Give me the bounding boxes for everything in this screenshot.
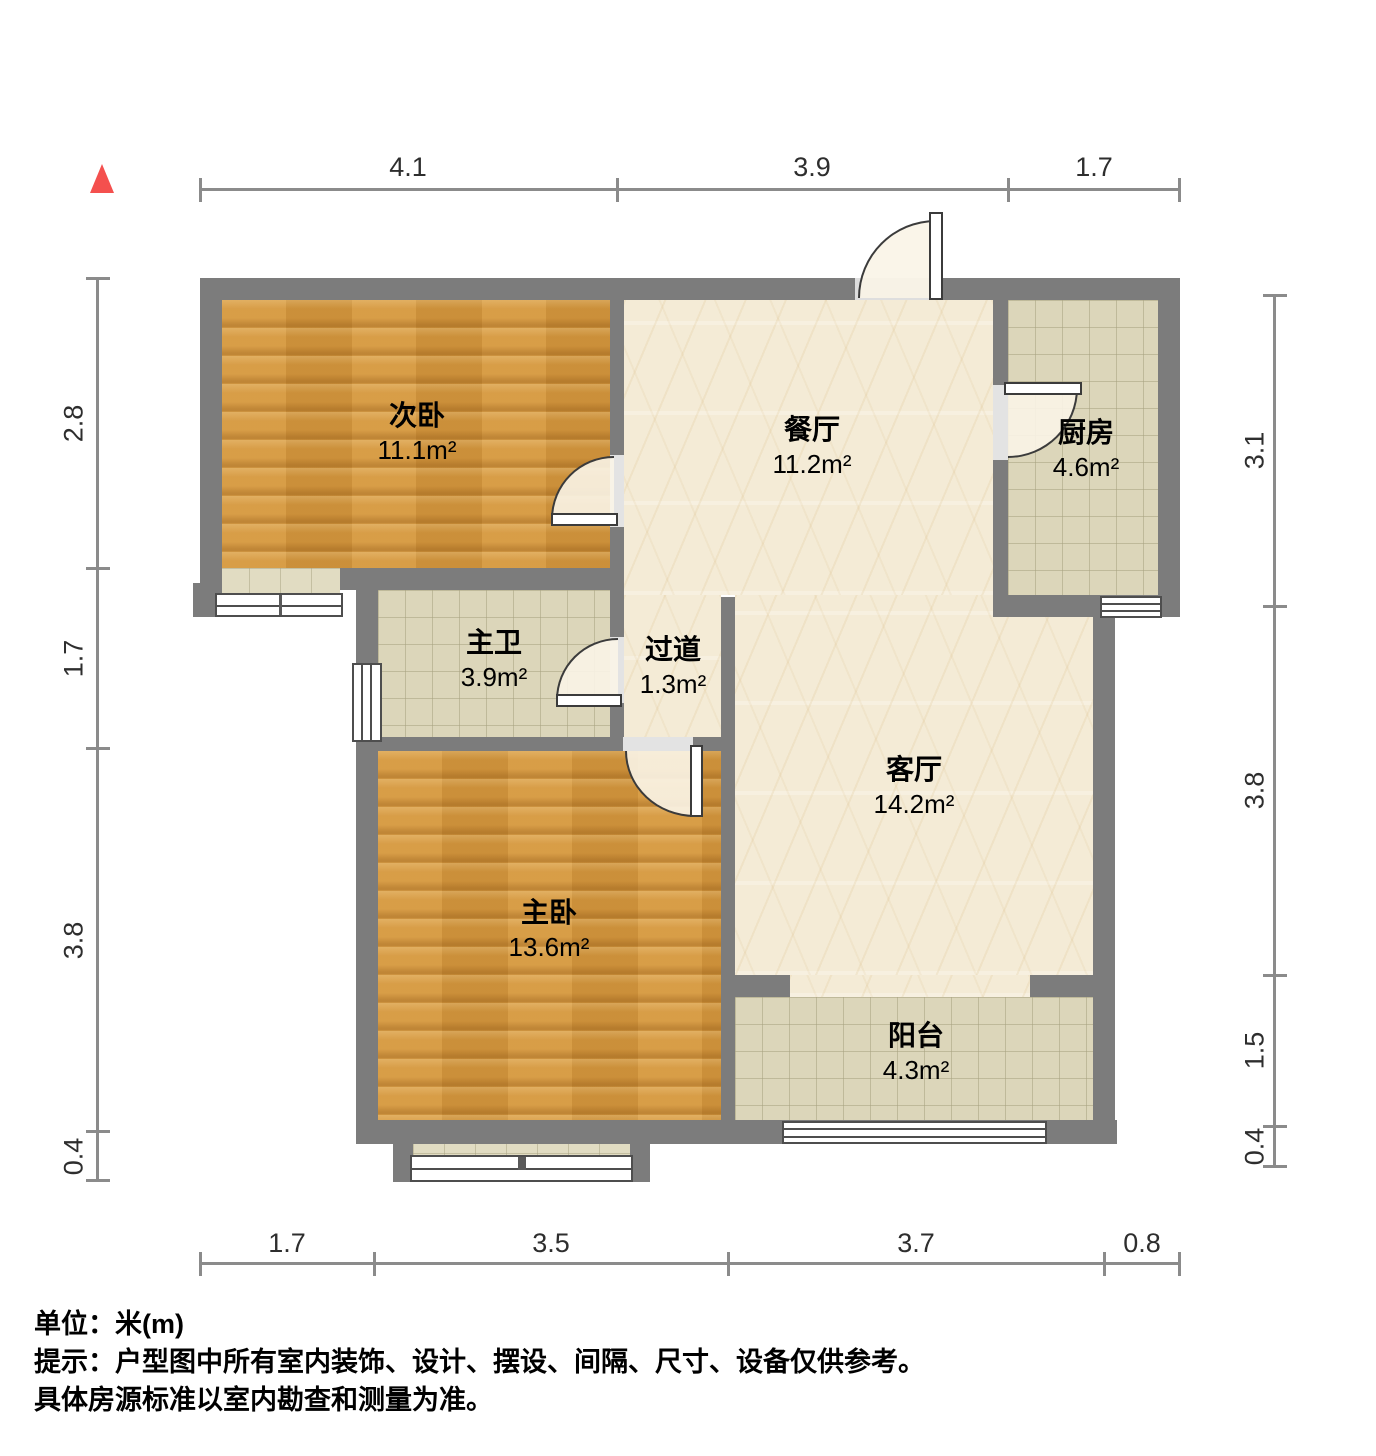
dim-tick — [727, 1252, 730, 1276]
living-balcony-passage-floor — [790, 975, 1030, 997]
window-mullion — [361, 665, 363, 740]
room-area: 14.2m² — [824, 787, 1004, 821]
room-name: 过道 — [583, 633, 763, 667]
dim-tick — [86, 1130, 110, 1133]
dim-label: 1.7 — [59, 619, 90, 699]
wall-left-outer — [200, 278, 222, 583]
dim-line-bottom — [200, 1262, 1180, 1265]
window-mullion — [518, 1157, 526, 1170]
room-area: 11.2m² — [722, 447, 902, 481]
wall-balcony-stub-left — [735, 975, 790, 997]
entry-door-leaf — [929, 212, 943, 300]
dim-tick — [1263, 974, 1287, 977]
room-name: 次卧 — [327, 399, 507, 433]
dim-label: 1.5 — [1240, 1011, 1271, 1091]
dim-tick — [1007, 178, 1010, 202]
bedroom1-door-leaf — [690, 745, 703, 817]
wall-top — [200, 278, 1180, 300]
room-label-bathroom: 主卫 3.9m² — [404, 626, 584, 694]
footer-disclaimer-line2: 具体房源标准以室内勘查和测量为准。 — [34, 1378, 493, 1417]
wall-bay1-jamb-right — [630, 1144, 650, 1182]
bedroom1-bay-window — [410, 1155, 633, 1182]
dim-label: 4.1 — [368, 152, 448, 183]
wall-bedroom1-bottom — [356, 1120, 721, 1144]
dim-label: 3.7 — [876, 1228, 956, 1259]
wall-balcony-stub-right — [1030, 975, 1093, 997]
room-area: 13.6m² — [459, 930, 639, 964]
room-name: 主卫 — [404, 626, 584, 660]
dim-tick — [199, 178, 202, 202]
dim-tick — [1178, 178, 1181, 202]
dim-tick — [86, 1179, 110, 1182]
dim-label: 3.8 — [59, 901, 90, 981]
window-mullion — [784, 1136, 1045, 1138]
room-name: 厨房 — [996, 416, 1176, 450]
window-mullion — [1102, 610, 1160, 612]
room-label-bedroom1: 主卧 13.6m² — [459, 896, 639, 964]
dim-tick — [86, 747, 110, 750]
room-area: 3.9m² — [404, 660, 584, 694]
dim-label: 3.1 — [1240, 411, 1271, 491]
dim-tick — [199, 1252, 202, 1276]
room-label-balcony: 阳台 4.3m² — [826, 1019, 1006, 1087]
window-mullion — [1102, 603, 1160, 605]
dim-line-top — [200, 188, 1180, 191]
dim-label: 1.7 — [1054, 152, 1134, 183]
footer-unit-note: 单位：米(m) — [34, 1302, 184, 1341]
wall-living-right — [1093, 617, 1115, 1144]
dim-tick — [616, 178, 619, 202]
room-area: 1.3m² — [583, 667, 763, 701]
dim-tick — [1263, 605, 1287, 608]
wall-under-bedroom2 — [340, 568, 624, 590]
dim-label: 0.4 — [1240, 1107, 1271, 1187]
room-area: 4.3m² — [826, 1053, 1006, 1087]
room-label-dining: 餐厅 11.2m² — [722, 413, 902, 481]
dim-line-left — [96, 278, 99, 1182]
room-label-hallway: 过道 1.3m² — [583, 633, 763, 701]
room-label-bedroom2: 次卧 11.1m² — [327, 399, 507, 467]
footer-disclaimer-line1: 提示：户型图中所有室内装饰、设计、摆设、间隔、尺寸、设备仅供参考。 — [34, 1340, 925, 1379]
kitchen-window — [1100, 596, 1162, 618]
room-area: 11.1m² — [327, 433, 507, 467]
bedroom1-door-opening — [623, 737, 693, 751]
window-mullion — [370, 665, 372, 740]
dim-label: 3.9 — [772, 152, 852, 183]
balcony-window — [782, 1121, 1047, 1144]
bedroom2-door-leaf — [551, 513, 618, 526]
window-mullion — [279, 595, 282, 615]
dim-tick — [373, 1252, 376, 1276]
dim-label: 1.7 — [247, 1228, 327, 1259]
room-label-living: 客厅 14.2m² — [824, 753, 1004, 821]
dim-tick — [86, 567, 110, 570]
dim-label: 3.8 — [1240, 751, 1271, 831]
dim-tick — [1263, 294, 1287, 297]
room-label-kitchen: 厨房 4.6m² — [996, 416, 1176, 484]
dim-tick — [86, 277, 110, 280]
room-area: 4.6m² — [996, 450, 1176, 484]
entry-door-swing-arc — [858, 220, 936, 298]
window-mullion — [784, 1128, 1045, 1130]
bathroom-window — [352, 663, 382, 742]
room-name: 主卧 — [459, 896, 639, 930]
dim-label: 3.5 — [511, 1228, 591, 1259]
dim-line-right — [1273, 295, 1276, 1166]
north-arrow-icon — [90, 164, 114, 193]
bedroom2-bay-window-sill — [218, 568, 340, 593]
kitchen-door-leaf — [1004, 382, 1082, 395]
dim-label: 0.8 — [1102, 1228, 1182, 1259]
room-name: 餐厅 — [722, 413, 902, 447]
room-name: 客厅 — [824, 753, 1004, 787]
room-name: 阳台 — [826, 1019, 1006, 1053]
dim-label: 0.4 — [59, 1117, 90, 1197]
dim-label: 2.8 — [59, 384, 90, 464]
bedroom2-bay-window — [215, 593, 343, 617]
floor-plan: 次卧 11.1m² 餐厅 11.2m² 厨房 4.6m² 主卫 3.9m² 过道… — [0, 0, 1376, 1456]
